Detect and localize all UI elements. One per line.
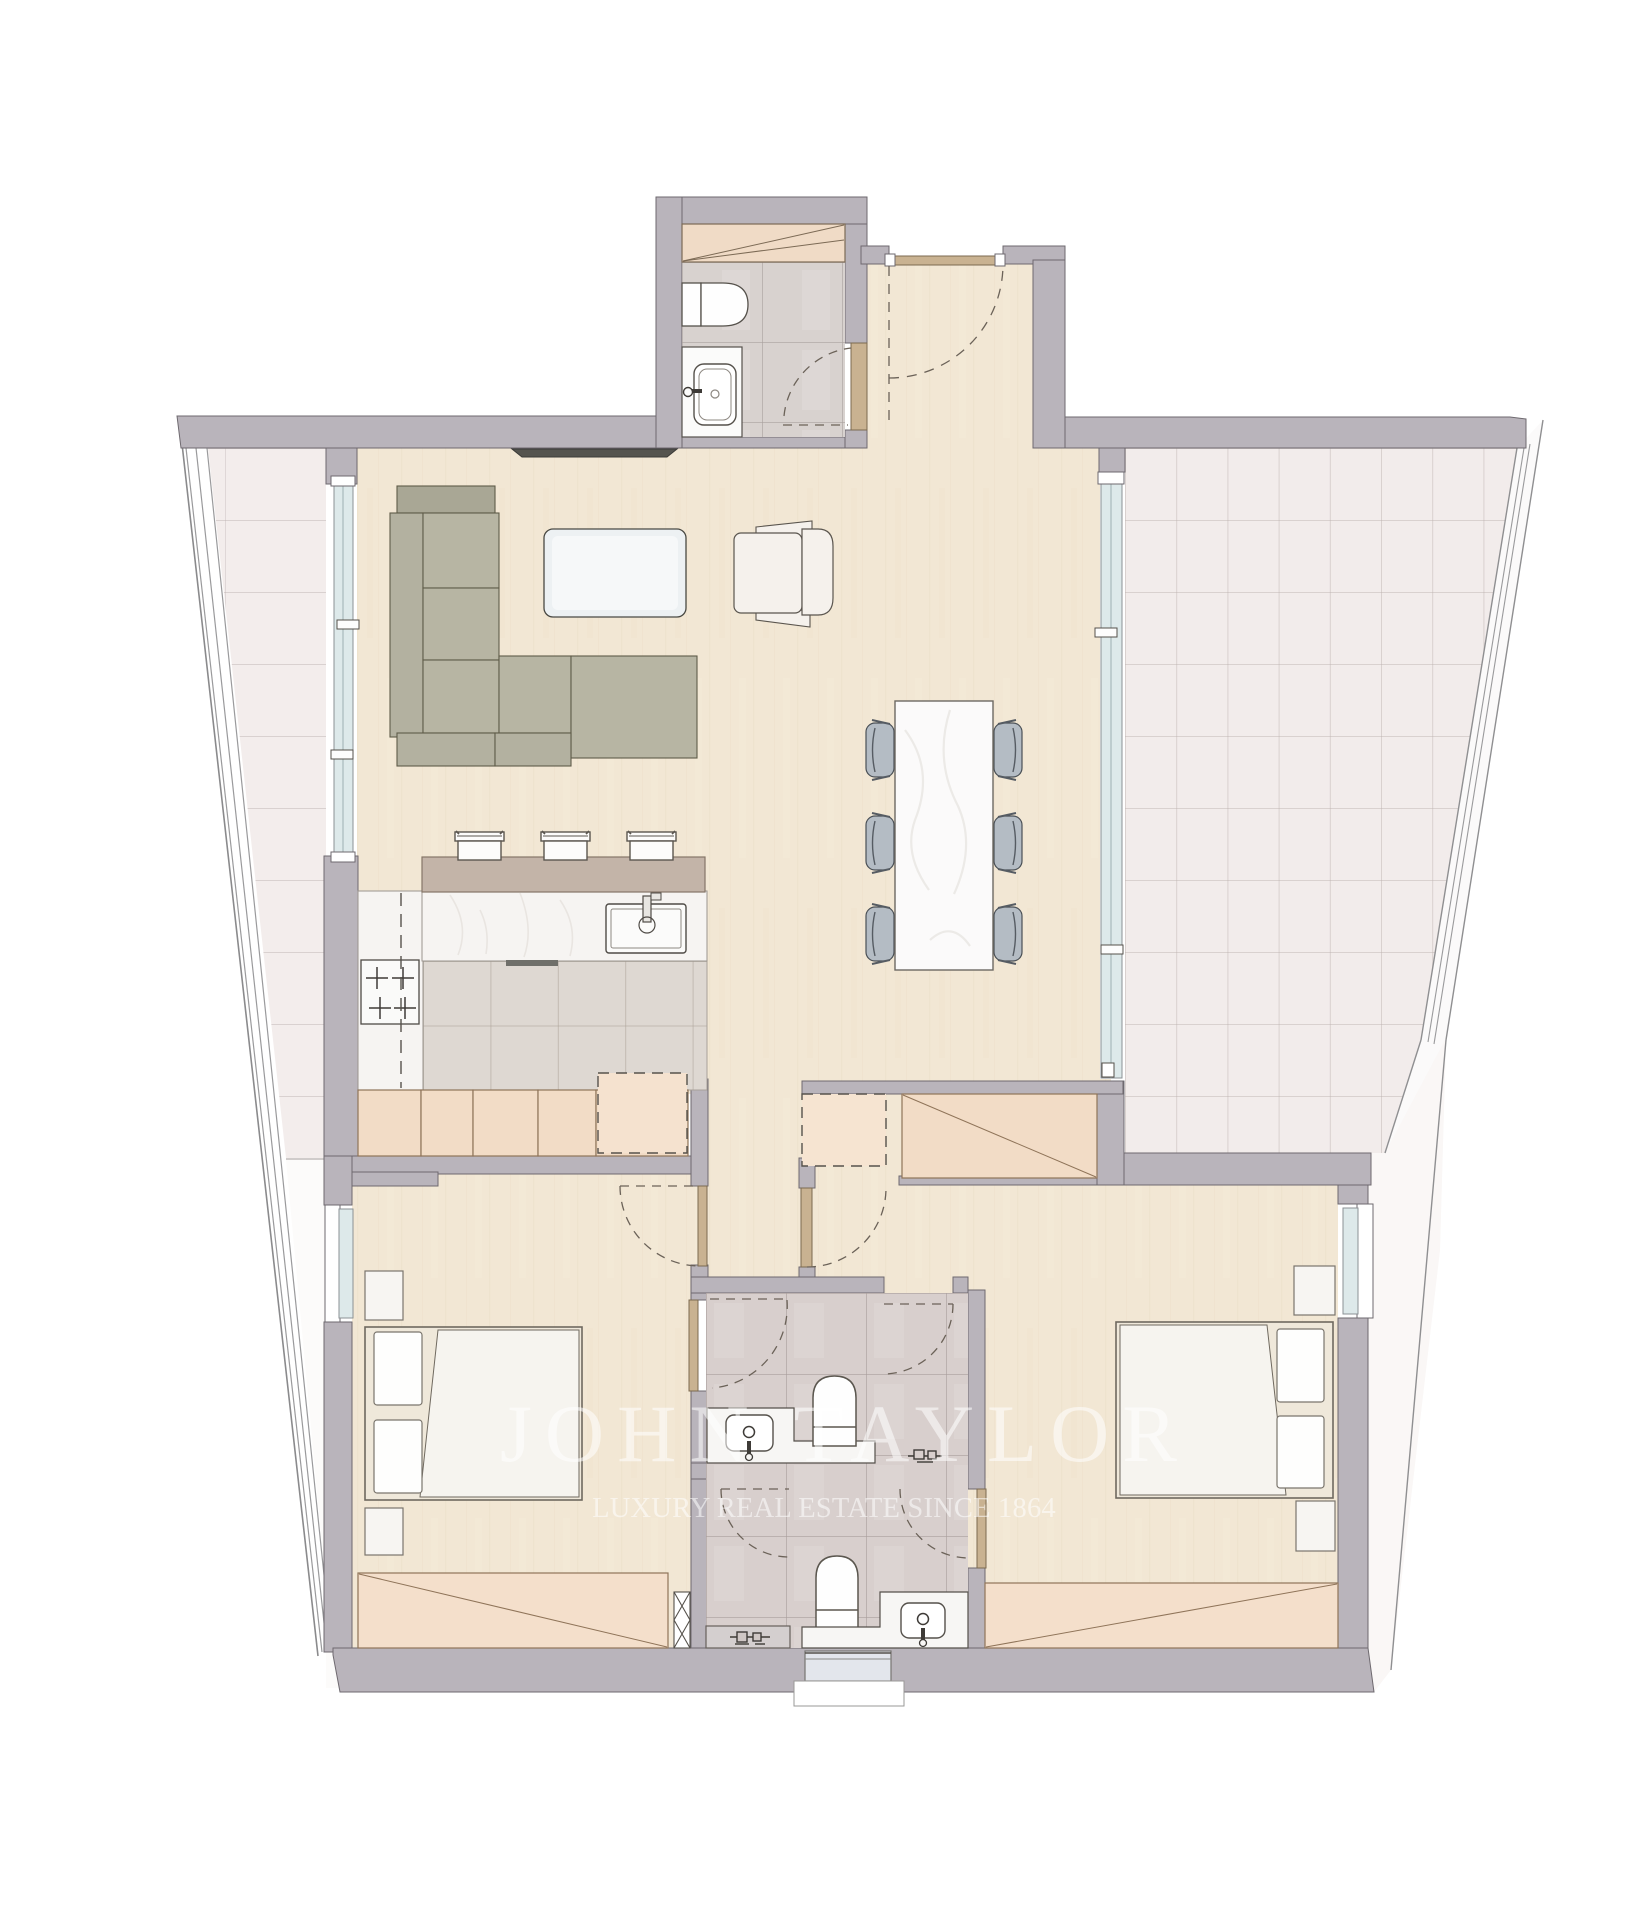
svg-text:LUXURY REAL ESTATE SINCE 1864: LUXURY REAL ESTATE SINCE 1864 [592,1493,1056,1524]
svg-text:JOHN TAYLOR: JOHN TAYLOR [500,1388,1190,1479]
